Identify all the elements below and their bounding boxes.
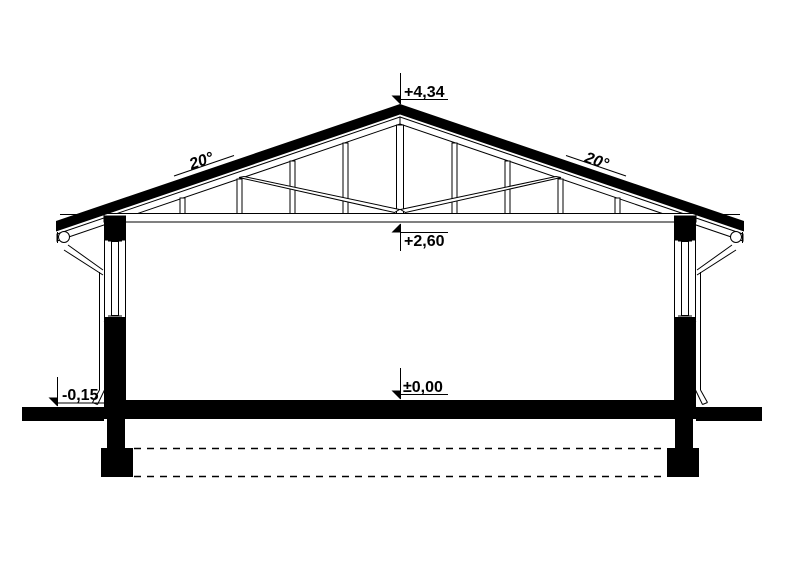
exterior-ground-right	[696, 407, 762, 421]
truss-vertical	[180, 198, 185, 215]
level-marker-ceiling: +2,60	[392, 224, 449, 252]
soffit-right	[697, 245, 736, 275]
gutter-right	[731, 232, 742, 243]
truss-diagonal-left	[239, 177, 400, 213]
gutter-left	[59, 232, 70, 243]
truss-vertical	[615, 198, 620, 215]
truss-vertical	[343, 143, 348, 215]
ceiling-level-label: +2,60	[404, 233, 445, 250]
window-glazing-left	[112, 242, 119, 316]
truss-bottom-chord	[104, 214, 696, 223]
level-arrow-icon	[392, 391, 401, 400]
wall-plate-right	[674, 216, 696, 241]
truss-vertical	[237, 179, 242, 215]
foundation-footing-right	[667, 448, 699, 477]
wall-plate-left	[104, 216, 126, 241]
left-eave	[58, 232, 105, 405]
level-marker-ridge: +4,34	[392, 73, 449, 105]
roof-truss	[57, 117, 743, 241]
left-wall	[104, 216, 126, 401]
ridge-level-label: +4,34	[404, 84, 445, 101]
level-marker-floor: ±0,00	[392, 368, 449, 400]
floor-slab	[104, 400, 696, 419]
architectural-section-drawing: +4,34 +2,60 ±0,00 -0,15 20° 20°	[0, 0, 800, 566]
right-wall	[674, 216, 696, 401]
foundation-hidden-lines	[134, 449, 666, 477]
floor-level-label: ±0,00	[403, 379, 443, 396]
wall-lower-left	[104, 317, 126, 400]
ground-and-foundations	[22, 400, 762, 477]
king-post	[397, 125, 404, 215]
soffit-left	[64, 245, 103, 275]
level-marker-exterior-ground: -0,15	[49, 377, 106, 407]
level-arrow-icon	[392, 224, 401, 233]
wall-lower-right	[674, 317, 696, 400]
ground-level-label: -0,15	[62, 387, 99, 404]
foundation-stem-right	[675, 419, 693, 448]
truss-vertical	[558, 179, 563, 215]
level-arrow-icon	[392, 96, 401, 105]
truss-diagonal-right	[401, 177, 562, 213]
downspout-elbow-right	[696, 390, 708, 405]
right-eave	[696, 232, 743, 405]
section-canvas: +4,34 +2,60 ±0,00 -0,15 20° 20°	[0, 0, 800, 566]
window-glazing-right	[682, 242, 689, 316]
downspout-right	[696, 272, 701, 390]
downspout-left	[100, 272, 105, 390]
truss-vertical	[452, 143, 457, 215]
foundation-footing-left	[101, 448, 133, 477]
exterior-ground-left	[22, 407, 104, 421]
level-arrow-icon	[49, 398, 58, 407]
foundation-stem-left	[107, 419, 125, 448]
